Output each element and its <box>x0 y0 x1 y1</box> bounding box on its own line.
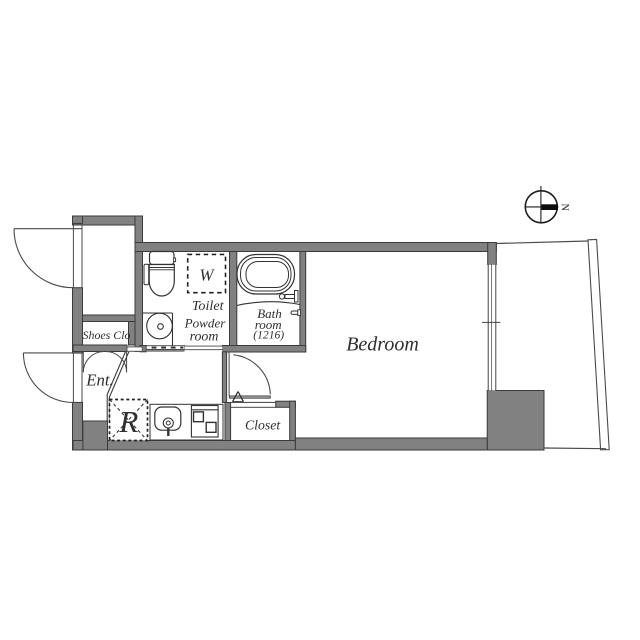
svg-text:W: W <box>199 266 215 285</box>
svg-text:room: room <box>190 330 219 345</box>
svg-text:Shoes Clo: Shoes Clo <box>83 328 131 342</box>
svg-text:Closet: Closet <box>245 417 281 432</box>
svg-text:Powder: Powder <box>184 315 227 330</box>
svg-text:Ent.: Ent. <box>85 371 114 390</box>
svg-text:R: R <box>118 404 138 439</box>
svg-text:(1216): (1216) <box>253 329 284 342</box>
svg-text:Bedroom: Bedroom <box>346 334 419 356</box>
svg-text:Toilet: Toilet <box>192 298 225 314</box>
svg-text:N: N <box>559 204 570 211</box>
